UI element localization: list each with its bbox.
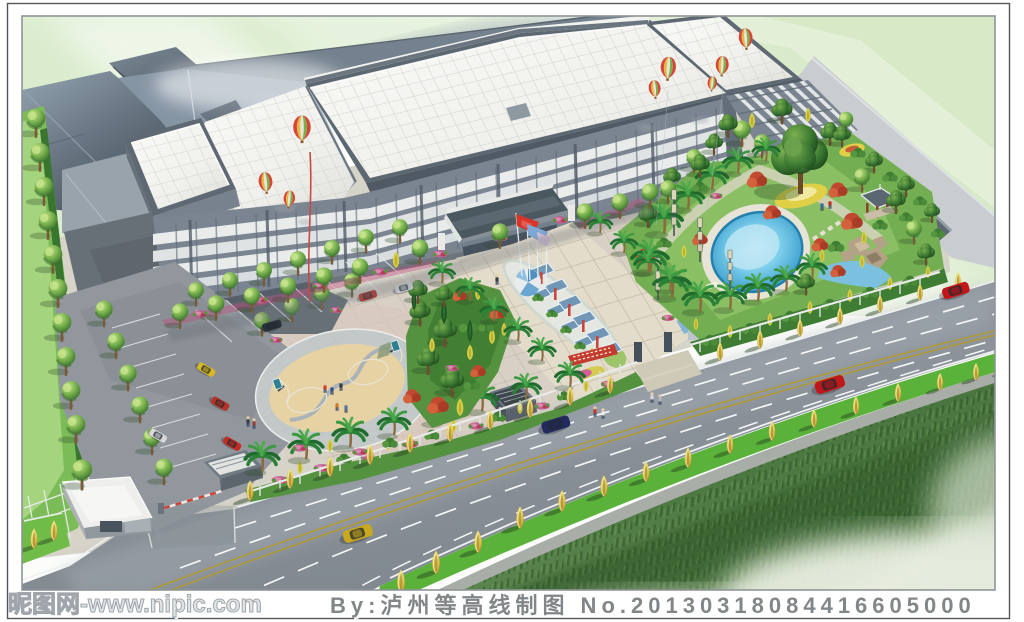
svg-text:By:泸州等高线制图 No.201303180844166: By:泸州等高线制图 No.20130318084416605000 xyxy=(330,593,976,618)
svg-text:昵图网-www.nipic.com: 昵图网-www.nipic.com xyxy=(8,591,262,618)
